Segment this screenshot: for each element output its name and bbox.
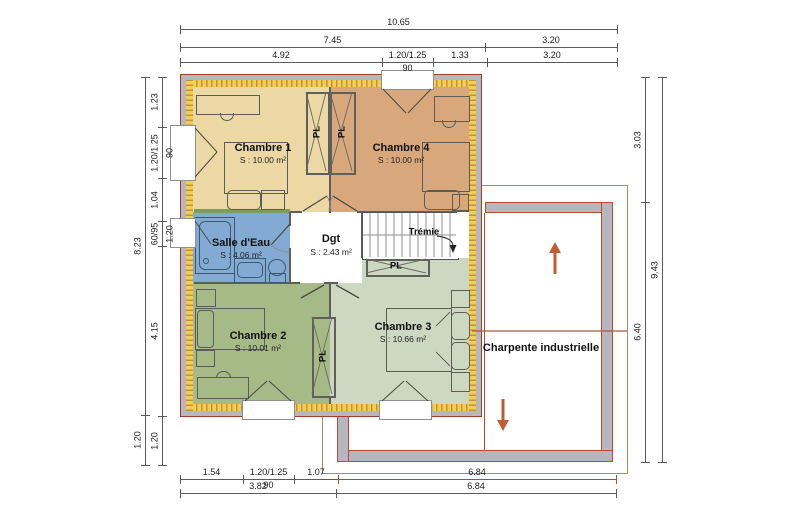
dimension-label: 1.20/1.25 [250,468,288,477]
dimension-tick [641,77,650,78]
dimension-tick [617,25,618,34]
dimension-line [180,493,616,494]
dimension-label: 3.20 [542,36,560,45]
dimension-label: 60/95 [151,222,160,245]
dimension-sublabel: 90 [402,64,412,73]
dimension-label: 1.20/1.25 [389,51,427,60]
dimension-sublabel: 90 [166,147,175,157]
dimension-tick [180,43,181,52]
dimension-tick [158,465,167,466]
dimension-line [145,77,146,465]
dimension-tick [180,25,181,34]
dimension-tick [616,475,617,484]
dimension-line [180,29,617,30]
dimension-label: 9.43 [651,261,660,279]
dimension-tick [294,475,295,484]
dimension-layer: 10.657.453.204.921.20/1.25901.333.201.54… [0,0,800,516]
dimension-line [162,77,163,465]
dimension-tick [158,77,167,78]
dimension-label: 1.33 [451,51,469,60]
dimension-tick [617,43,618,52]
dimension-tick [180,58,181,67]
dimension-tick [658,77,667,78]
dimension-label: 1.23 [151,93,160,111]
dimension-label: 3.03 [634,131,643,149]
dimension-label: 6.84 [467,482,485,491]
dimension-label: 1.20 [134,431,143,449]
dimension-tick [487,58,488,67]
floor-plan-canvas: Chambre 1 S : 10.00 m² Chambre 4 S : 10.… [0,0,800,516]
dimension-label: 6.40 [634,323,643,341]
dimension-tick [658,462,667,463]
dimension-label: 7.45 [324,36,342,45]
dimension-label: 1.20 [151,432,160,450]
dimension-tick [141,465,150,466]
dimension-label: 4.92 [272,51,290,60]
dimension-tick [433,58,434,67]
dimension-label: 1.54 [203,468,221,477]
dimension-line [180,479,338,480]
dimension-tick [158,127,167,128]
dimension-tick [382,58,383,67]
dimension-tick [141,77,150,78]
dimension-tick [338,475,339,484]
dimension-label: 10.65 [387,18,410,27]
dimension-sublabel: 1.20 [166,225,175,243]
dimension-line [338,479,616,480]
dimension-tick [158,178,167,179]
dimension-tick [616,489,617,498]
dimension-tick [617,58,618,67]
dimension-label: 3.82 [249,482,267,491]
dimension-line [180,62,617,63]
dimension-tick [180,489,181,498]
dimension-line [645,77,646,462]
dimension-label: 8.23 [134,237,143,255]
dimension-tick [336,489,337,498]
dimension-tick [158,416,167,417]
dimension-label: 1.07 [307,468,325,477]
dimension-label: 4.15 [151,322,160,340]
dimension-line [180,47,617,48]
dimension-tick [485,43,486,52]
dimension-label: 3.20 [543,51,561,60]
dimension-label: 6.84 [468,468,486,477]
dimension-tick [141,415,150,416]
dimension-tick [243,475,244,484]
dimension-tick [641,462,650,463]
dimension-tick [158,246,167,247]
dimension-line [662,77,663,462]
dimension-tick [641,202,650,203]
dimension-label: 1.04 [151,191,160,209]
dimension-label: 1.20/1.25 [151,134,160,172]
dimension-tick [180,475,181,484]
